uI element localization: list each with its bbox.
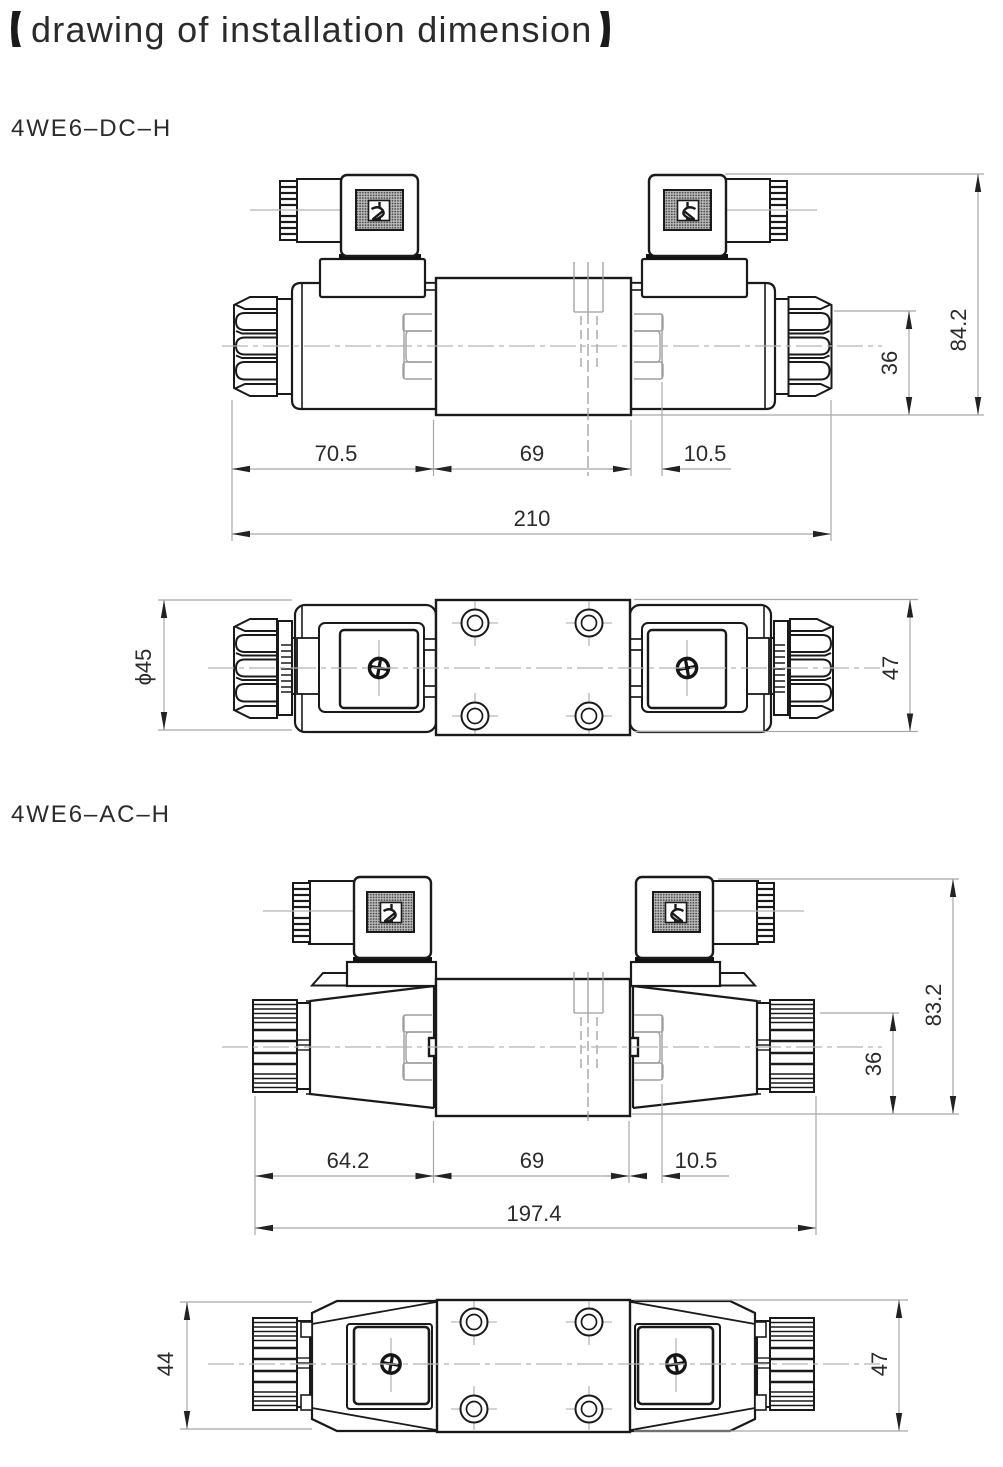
svg-text:36: 36 [861, 1052, 886, 1076]
svg-text:69: 69 [520, 1148, 544, 1173]
svg-text:197.4: 197.4 [506, 1201, 561, 1226]
svg-text:69: 69 [520, 441, 544, 466]
svg-text:83.2: 83.2 [921, 984, 946, 1027]
svg-text:36: 36 [877, 351, 902, 375]
svg-text:4WE6–AC–H: 4WE6–AC–H [11, 801, 171, 828]
svg-text:64.2: 64.2 [327, 1148, 370, 1173]
svg-text:70.5: 70.5 [315, 441, 358, 466]
svg-text:84.2: 84.2 [946, 309, 971, 352]
svg-text:4WE6–DC–H: 4WE6–DC–H [11, 115, 172, 142]
svg-text:47: 47 [867, 1352, 892, 1376]
svg-text:ϕ45: ϕ45 [131, 649, 156, 686]
svg-text:47: 47 [878, 656, 903, 680]
svg-text:44: 44 [153, 1352, 178, 1376]
svg-text:10.5: 10.5 [675, 1148, 718, 1173]
svg-text:drawing of installation dimens: drawing of installation dimension [31, 9, 593, 50]
svg-text:210: 210 [514, 506, 551, 531]
svg-text:10.5: 10.5 [684, 441, 727, 466]
